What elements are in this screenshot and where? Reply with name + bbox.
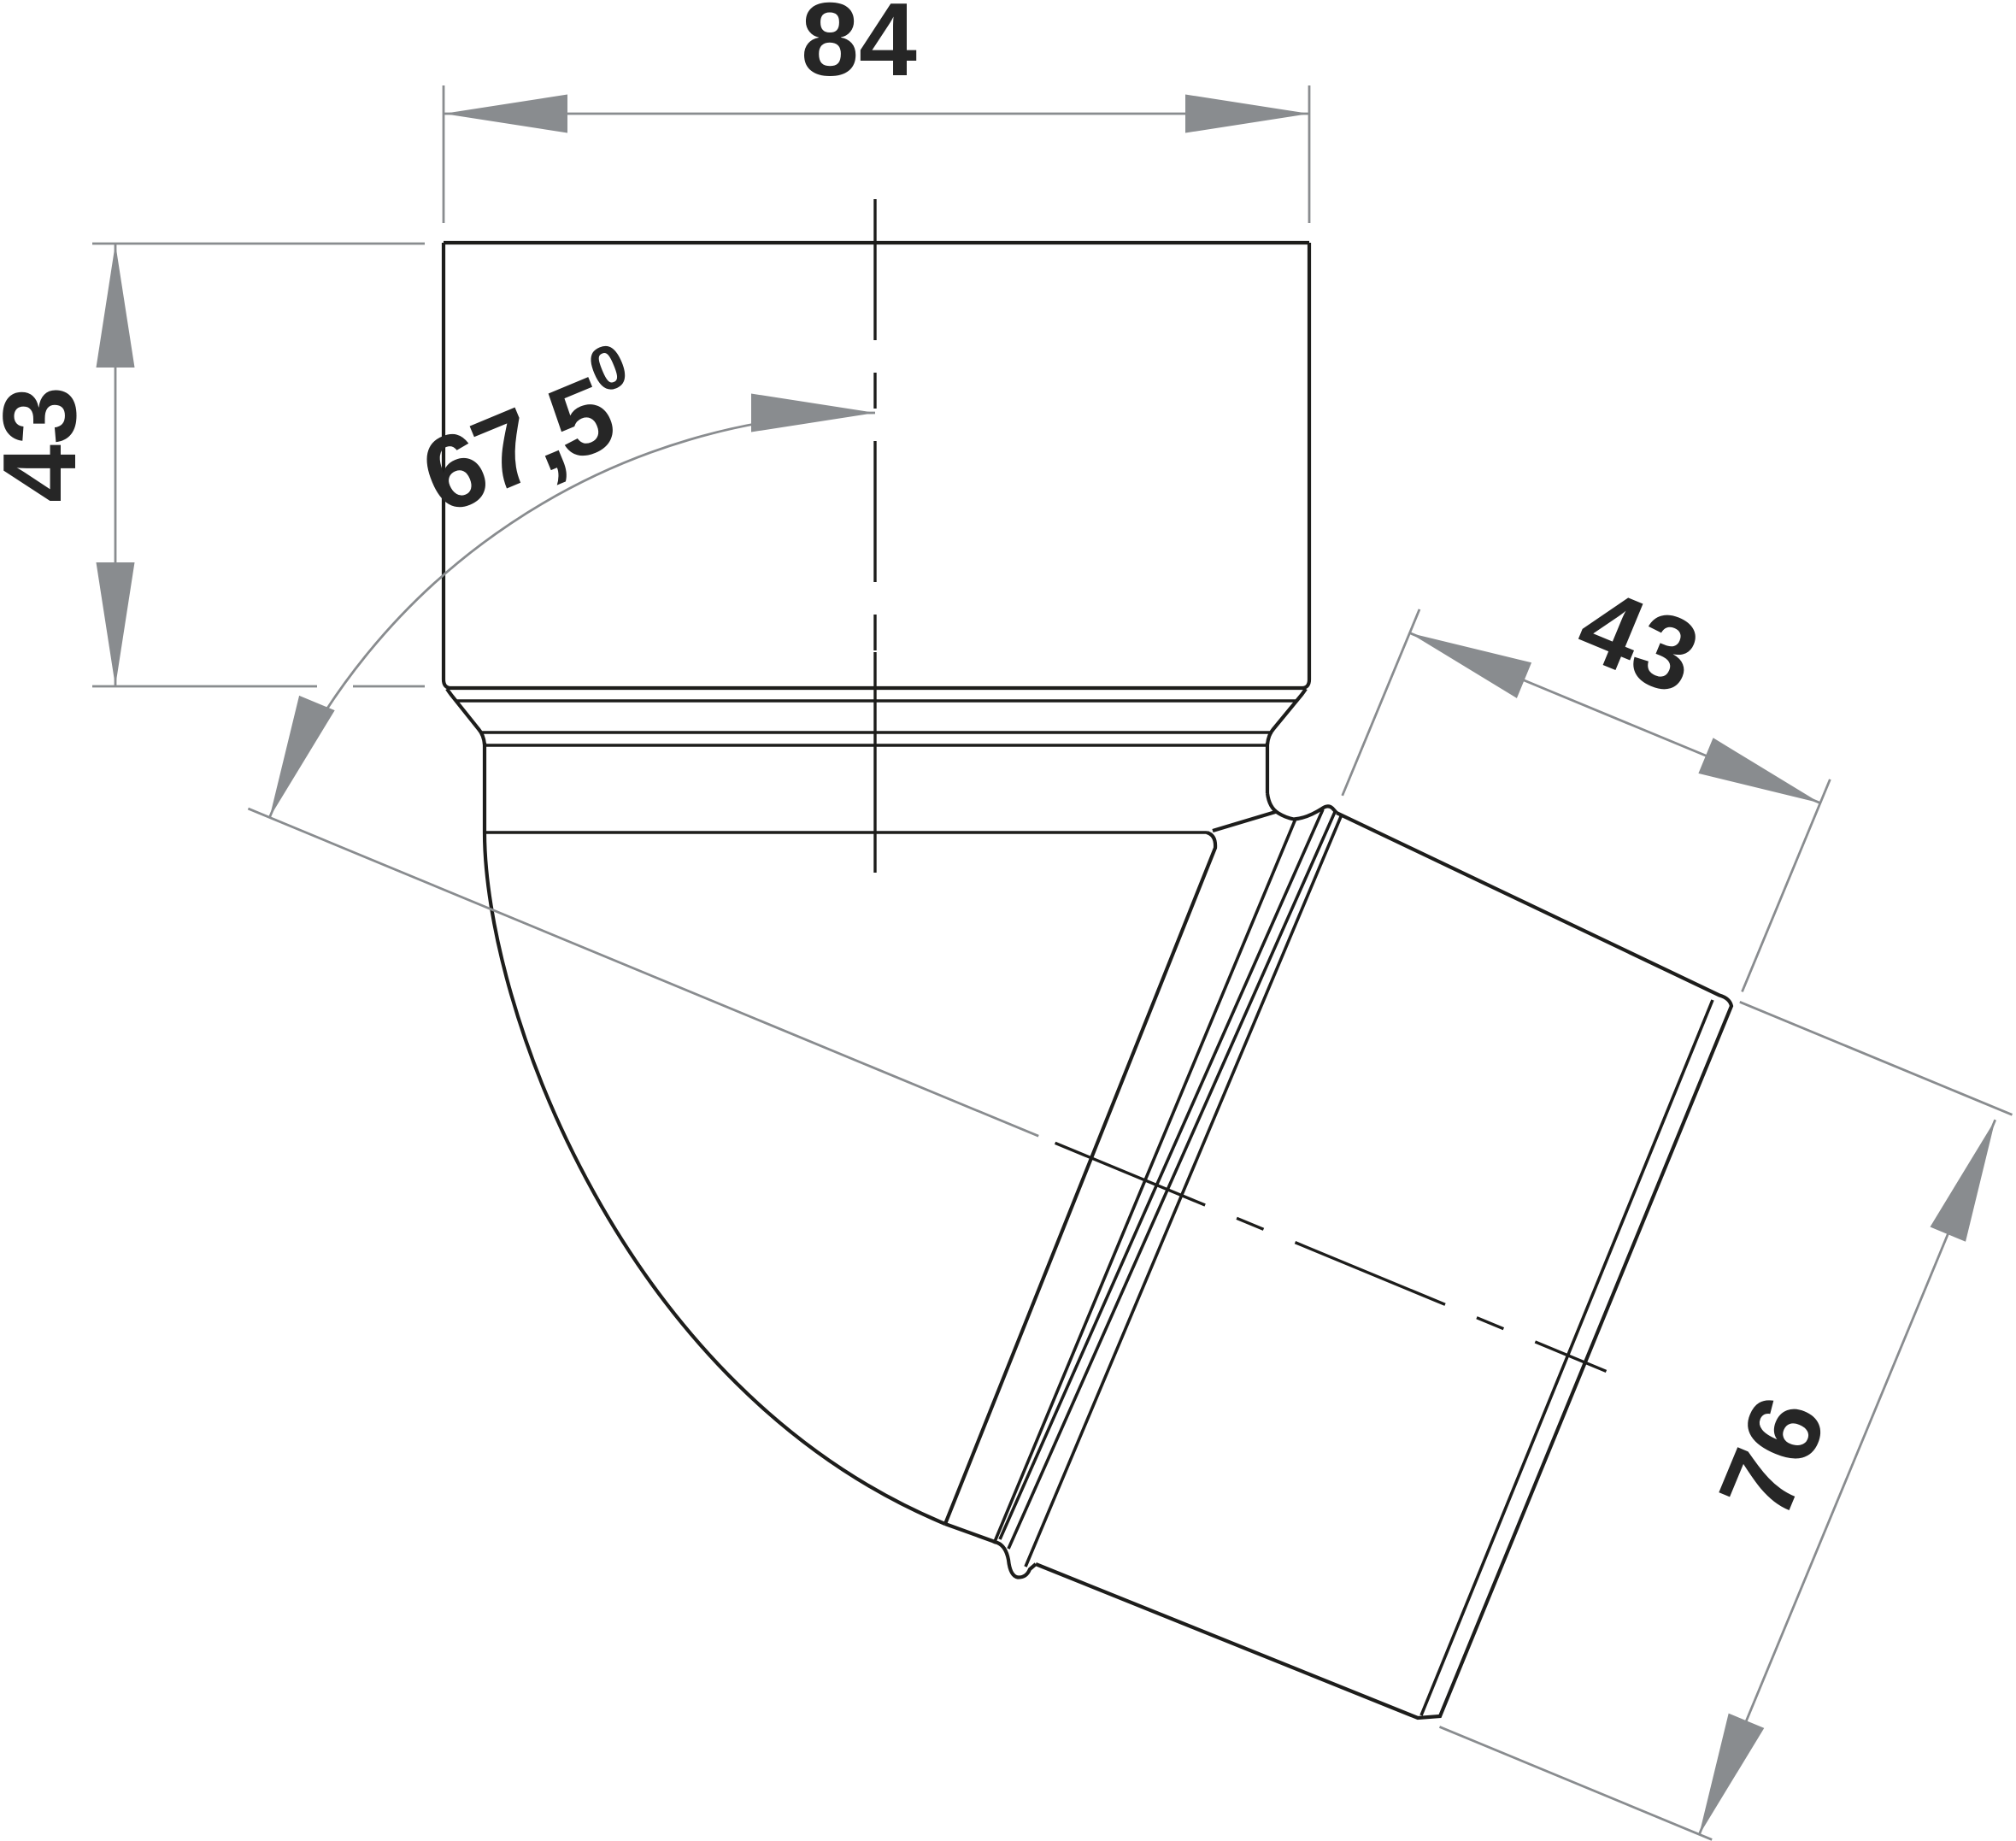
svg-text:84: 84 [801, 0, 917, 97]
svg-text:43: 43 [1563, 565, 1714, 717]
svg-text:43: 43 [0, 386, 97, 503]
svg-text:76: 76 [1696, 1381, 1848, 1532]
svg-text:67,50: 67,50 [401, 331, 658, 536]
